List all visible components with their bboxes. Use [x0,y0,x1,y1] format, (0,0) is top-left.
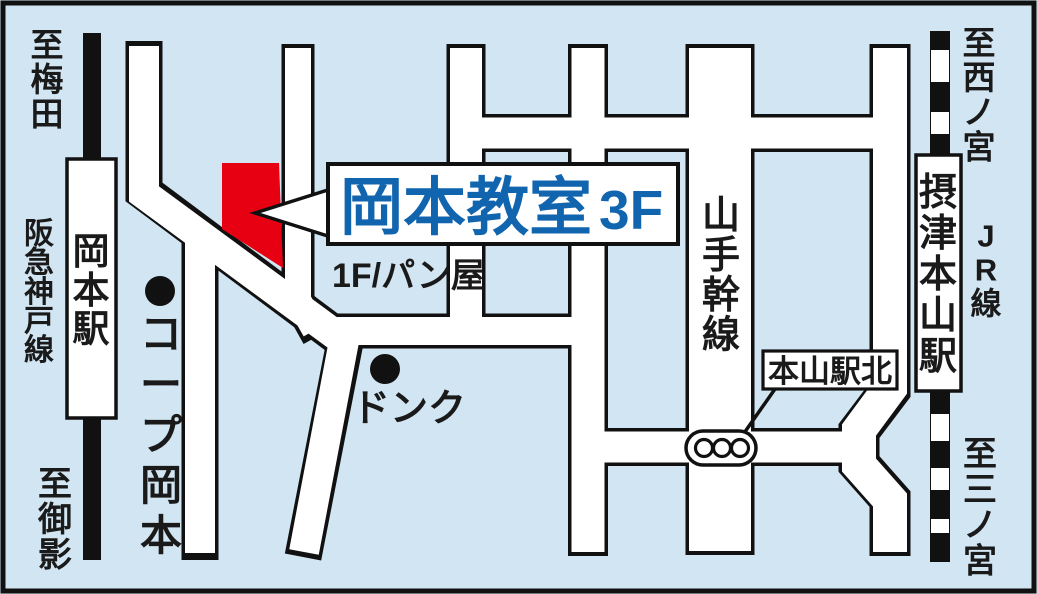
label-classroom-name: 岡本教室 [340,173,592,243]
label-yamate-kansen: 山手幹線 [702,195,740,357]
traffic-light-icon [686,431,756,465]
label-coop-okamoto: コープ岡本 [140,311,182,560]
label-to-nishinomiya: 至西ノ宮 [963,24,996,165]
label-to-umeda: 至梅田 [31,26,64,132]
label-hankyu-kobe-line: 阪急神戸線 [24,218,54,367]
label-okamoto-station: 岡本駅 [73,231,110,350]
label-classroom-floor: 3F [599,179,663,241]
label-bakery-1f: 1F/パン屋 [332,257,485,295]
label-to-sannomiya: 至三ノ宮 [963,435,997,580]
coop-okamoto-dot [145,276,175,306]
label-donq: ドンク [352,388,466,430]
access-map-canvas: 至梅田阪急神戸線岡本駅至御影コープ岡本ドンク1F/パン屋岡本教室3F山手幹線本山… [0,0,1037,594]
access-map: 至梅田阪急神戸線岡本駅至御影コープ岡本ドンク1F/パン屋岡本教室3F山手幹線本山… [0,0,1037,594]
donq-dot [370,354,400,384]
label-motoyama-eki-kita: 本山駅北 [768,354,892,389]
label-settsu-motoyama-sta: 摂津本山駅 [919,172,957,378]
label-to-mikage: 至御影 [37,465,72,574]
